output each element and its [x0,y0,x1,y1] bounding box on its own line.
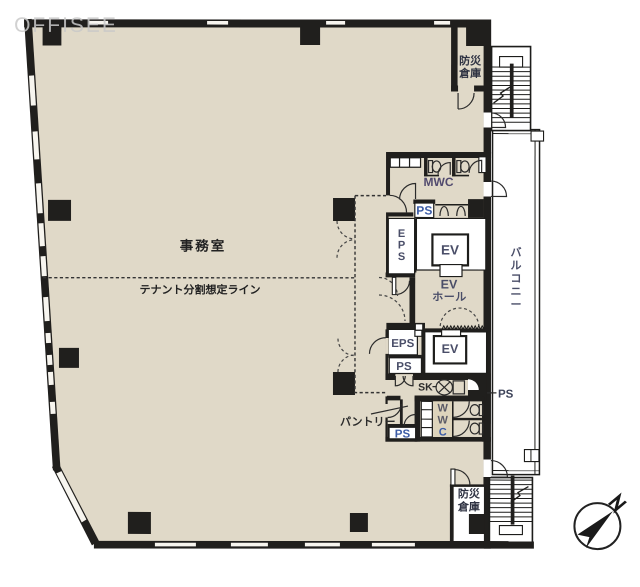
svg-text:EPS: EPS [391,338,414,350]
svg-text:E: E [398,228,405,240]
svg-text:W: W [438,403,449,415]
svg-text:EV: EV [442,342,459,356]
svg-text:MWC: MWC [424,175,454,189]
svg-text:C: C [439,427,447,439]
svg-text:PS: PS [498,389,514,401]
svg-text:防災: 防災 [459,54,482,68]
svg-text:テナント分割想定ライン: テナント分割想定ライン [139,282,260,296]
svg-text:PS: PS [395,429,411,441]
svg-text:SK: SK [418,382,433,394]
svg-text:EV: EV [441,243,459,258]
svg-text:OFFISEE: OFFISEE [14,14,118,37]
svg-text:バ: バ [511,246,522,259]
svg-text:コ: コ [511,273,522,285]
svg-text:PS: PS [396,361,412,373]
svg-text:ニ: ニ [510,286,521,298]
svg-text:P: P [398,240,405,252]
svg-text:PS: PS [416,204,432,218]
svg-text:EV: EV [441,278,458,292]
svg-text:ホール: ホール [432,291,467,304]
svg-text:防災: 防災 [458,487,481,501]
svg-text:倉庫: 倉庫 [457,500,480,514]
svg-text:パントリー: パントリー [340,416,396,429]
svg-text:倉庫: 倉庫 [458,66,481,80]
svg-text:S: S [398,251,405,263]
svg-text:ル: ル [511,260,522,272]
svg-text:ー: ー [510,299,521,311]
svg-text:事務室: 事務室 [180,237,227,253]
svg-text:W: W [438,415,449,427]
